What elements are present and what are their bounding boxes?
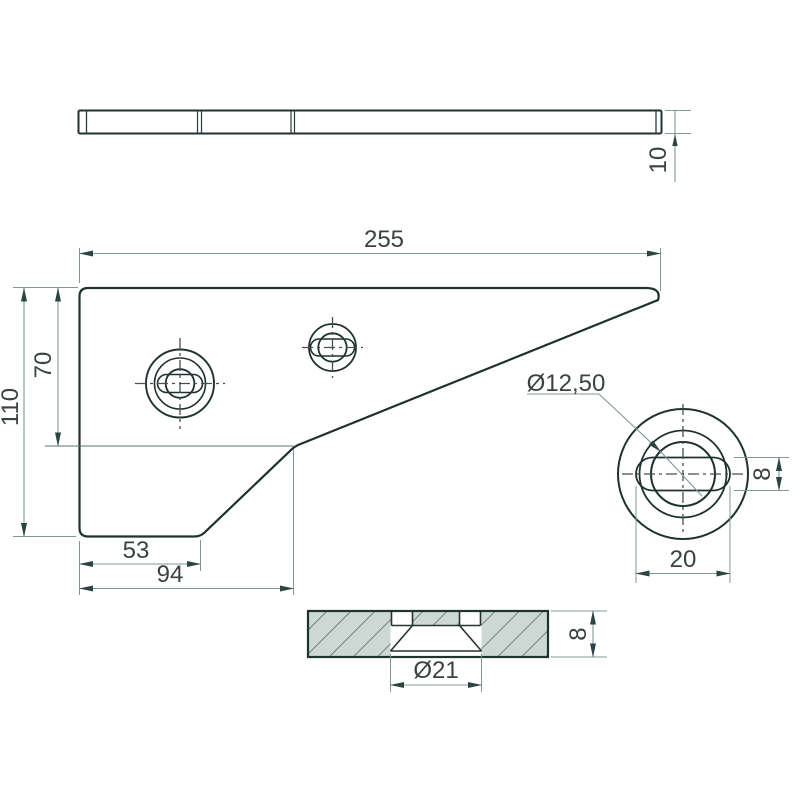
hole-countersunk-left — [135, 338, 225, 429]
arrowhead — [672, 134, 677, 146]
plate-outline — [80, 288, 659, 537]
dim-label-countersink-diameter: Ø21 — [413, 657, 458, 684]
dim-countersink-diameter-21: Ø21 — [391, 654, 482, 692]
slot-void-left — [392, 611, 413, 626]
dim-label-slot-height: 8 — [749, 467, 776, 480]
dim-upper-height-70: 70 — [30, 288, 58, 446]
dim-label-10: 10 — [645, 147, 672, 174]
dim-label-section-thickness: 8 — [565, 627, 592, 640]
countersink-void — [391, 626, 482, 658]
top-view: 10 — [79, 111, 692, 183]
top-view-plate-strip — [79, 111, 662, 134]
dim-thickness-10: 10 — [645, 111, 691, 183]
hole-slotted-right — [302, 317, 363, 378]
dim-label-70: 70 — [30, 352, 57, 379]
technical-drawing: 10 255 — [0, 0, 800, 800]
dim-height-110: 110 — [0, 288, 78, 537]
hole-detail-view: Ø12,50 8 20 — [527, 370, 789, 583]
dim-label-53: 53 — [123, 537, 150, 564]
dim-label-slot-width: 20 — [670, 546, 697, 573]
dim-width-255: 255 — [80, 226, 661, 291]
technical-drawing-page: 10 255 — [0, 0, 800, 800]
center-material-hatch — [413, 611, 460, 626]
dim-section-thickness-8: 8 — [551, 611, 607, 657]
dim-label-255: 255 — [364, 226, 404, 253]
section-view: 8 Ø21 — [308, 611, 607, 692]
leader-bore-diameter: Ø12,50 — [527, 370, 702, 496]
dim-label-94: 94 — [157, 561, 184, 588]
dim-label-110: 110 — [0, 388, 24, 426]
slot-void-right — [460, 611, 481, 626]
dim-notch-94: 94 — [80, 449, 294, 595]
front-view: 255 110 70 53 94 — [0, 226, 661, 595]
dim-label-bore-diameter: Ø12,50 — [527, 370, 606, 397]
